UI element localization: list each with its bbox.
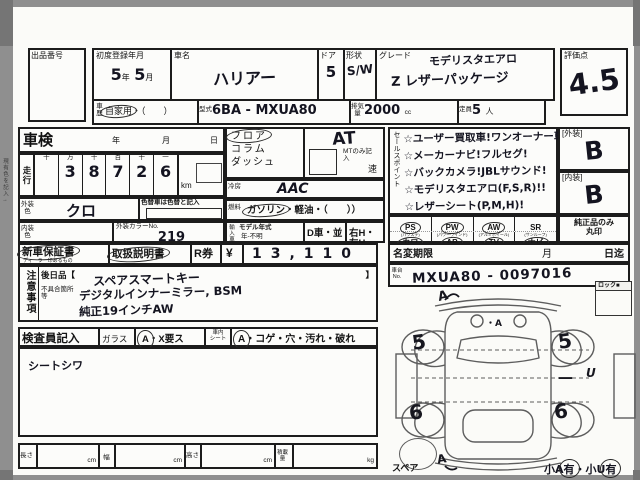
diagram-mark-wheel-rl: 6 [408,399,424,424]
cm-unit: cm [173,458,182,465]
name-change-month-unit: 月 [542,249,552,260]
digit-header: 一 [154,155,177,162]
chassis-number-row: 車台No. MXUA80 - 0097016 [388,263,630,287]
capacity-value: 5 [472,103,481,118]
seat-label-bottom: シート [206,337,230,343]
length-label: 長さ [20,452,33,459]
shaken-day-unit: 日 [210,137,218,146]
scan-corner [0,0,13,46]
mileage-digit: 2 [130,162,153,181]
mileage-row: 走行 十 万3 千8 百7 十2 一6 km [18,153,225,197]
exterior-color-value: クロ [66,200,96,221]
genuine-parts-note-box: 純正品のみ 丸印 [558,215,630,243]
scan-corner [633,0,640,46]
history-rest: ・（ ） [132,106,173,116]
interior-rating-value: B [559,176,630,212]
name-change-row: 名変期限 月 日迄 [388,243,630,263]
capacity-cell: 定員5 人 [457,101,544,123]
d-car-options: D車・並 [307,229,342,239]
seat-mark-a: A [238,332,245,348]
grade-cell: グレード モデリスタエアロ Z レザーパッケージ [375,50,553,99]
inspector-note: シートシワ [20,346,376,374]
spare-tire-label: スペア [392,464,418,474]
note-exists-2: 有 [605,461,616,477]
interior-color-row: 内装色 外装カラーNo. 219 [18,221,225,243]
warranty-sublabel: ディーラー印あるもの [20,259,108,264]
history-label: 車歴 [94,103,105,117]
glass-marks-cell: A・X要ス [134,329,204,345]
ac-value: AAC [277,181,309,197]
inspector-label: 検査員記入 [20,333,80,345]
inspector-header-row: 検査員記入 ガラス A・X要ス 車内 シート A・コゲ・穴・汚れ・破れ [18,327,378,347]
exterior-rating-value: B [559,132,630,168]
model-year-label: モデル年式 [239,225,272,232]
position-column: コラム [231,144,299,155]
mileage-digit-cell: 千8 [82,155,106,195]
note-small-a: 小A [544,463,564,476]
height-label: 高さ [186,452,199,459]
seat-mark-rest: ・コゲ・穴・汚れ・破れ [245,334,355,345]
mileage-digit: 8 [83,162,106,181]
digit-header: 十 [130,155,153,162]
first-registration-label: 初度登録年月 [94,50,170,63]
note-small-u: ・小U [575,463,606,476]
interior-rating-box: [内装] B [558,171,630,215]
import-handle-row: 輸入車 モデル年式 年-不明 D車・並 右H・左H [225,221,385,243]
capacity-unit: 人 [486,107,494,116]
mileage-digit-cell: 十2 [129,155,153,195]
displacement-label: 排気量 [351,103,364,117]
mileage-label: 走行 [20,155,33,195]
interior-color-label: 内装色 [21,225,34,239]
r-ticket-currency-cell: ¥ [220,245,242,263]
first-registration-cell: 初度登録年月 5年 5月 [94,50,170,99]
name-change-deadline-unit: 日迄 [604,249,624,260]
score-box: 評価点 4.5 [560,48,628,116]
r-ticket-value: 13,110 [244,245,376,262]
exterior-color-row: 外装色 クロ 色替車は色替と記入 [18,197,225,221]
width-label-cell: 幅 [98,445,114,467]
grade-label: グレード [377,50,413,63]
measurements-row: 長さ cm 幅 cm 高さ cm 積載量 kg [18,443,378,469]
mileage-digit-cell: 万3 [58,155,82,195]
later-item-label: 後日品【 [39,271,75,280]
sales-line: ☆レザーシート(P,M,H)! [404,197,555,217]
history-cell: 車歴自家用・（ ） [94,101,197,123]
fuel-label: 燃料 [228,204,241,211]
fuel-options-rest: ・軽油・（ ） [285,205,352,216]
chassis-value: MXUA80 - 0097016 [412,265,573,287]
lock-entry-box [595,290,632,316]
meter-note-box [196,163,222,183]
equipment-cell-aw: AW(アルミホイール) [473,217,515,231]
inspector-notes-box: シートシワ [18,347,378,437]
color-change-box [146,208,222,219]
defects-label: 不具合箇所等 [39,285,79,317]
ac-row: 冷房 AAC [225,179,385,199]
car-name-cell: 車名 ハリアー [170,50,317,99]
year-unit: 年 [122,73,130,82]
sales-line: ☆ユーザー買取車!ワンオーナー車! [403,129,554,149]
model-year-value: 年-不明 [241,234,263,241]
kg-unit: kg [367,458,374,465]
seat-marks-cell: A・コゲ・穴・汚れ・破れ [230,329,376,345]
diagram-mark-side-letter: U [586,366,596,380]
later-item-close: 】 [365,271,376,280]
mt-note: MTのみ記入 [343,149,377,163]
fuel-row: 燃料 ガソリン・軽油・（ ）） [225,199,385,221]
shaken-label: 車検 [20,132,53,149]
chassis-label: 車台No. [391,268,403,280]
glass-label-cell: ガラス [98,329,134,345]
equipment-cell-sr: SR(サンルーフ) [514,217,556,231]
mileage-digit-cell: 百7 [105,155,129,195]
shape-value: S/W [344,61,375,78]
shaken-row: 車検 年 月 日 [18,127,225,153]
door-value: 5 [319,63,343,81]
displacement-value: 2000 [364,103,400,118]
glass-mark-rest: ・X要ス [149,334,184,345]
yen-sign: ¥ [222,245,242,260]
height-label-cell: 高さ [184,445,200,467]
diagram-mark-hood: ・A [486,316,502,329]
capacity-label: 定員 [459,106,472,113]
fuel-selected: ガソリン [247,206,285,216]
header-row-1: 初度登録年月 5年 5月 車名 ハリアー ドア 5 形状 S/W グレード モデ… [92,48,555,101]
auction-number-box: 出品番号 [28,48,86,122]
model-code-cell: 型式6BA - MXUA80 [197,101,349,123]
cm-unit: cm [87,458,96,465]
lock-box: ロック■ [595,281,632,316]
door-label: ドア [319,50,343,63]
color-change-cell: 色替車は色替と記入 [138,199,229,219]
cm-unit: cm [263,458,272,465]
displacement-cell: 排気量2000 cc [349,101,457,123]
lock-label: ロック■ [595,281,632,290]
seat-label-cell: 車内 シート [204,329,230,345]
r-ticket-label: R券 [192,245,220,260]
inspector-label-cell: 検査員記入 [20,329,98,345]
digit-header: 十 [35,155,58,162]
equipment-cell-ps: PS(パワステ) [390,217,431,231]
digit-header: 百 [106,155,129,162]
shaken-year-unit: 年 [112,137,120,146]
sales-points-box: セールスポイント ☆ユーザー買取車!ワンオーナー車! ☆メーカーナビ!フルセグ!… [388,127,558,215]
position-dash: ダッシュ [231,157,299,168]
diagram-mark-wheel-rr: 6 [553,398,569,423]
model-code-value: 6BA - MXUA80 [212,103,317,118]
scan-corner [0,470,13,480]
warranty-row: 新車保証書 ディーラー印あるもの 取扱説明書 R券 ¥ 13,110 [18,243,378,265]
glass-label: ガラス [100,334,127,344]
d-car-cell: D車・並 [303,223,345,241]
first-registration-month: 5 [134,65,145,84]
sales-points-label: セールスポイント [391,131,401,215]
equipment-label: SR [530,223,541,232]
digit-header: 万 [59,155,82,162]
notes-label: 注意事項 [22,270,37,322]
width-label: 幅 [100,454,113,461]
name-change-label: 名変期限 [393,249,433,260]
color-change-note: 色替車は色替と記入 [140,199,229,208]
position-floor: フロア [231,131,267,142]
mileage-digit: 6 [154,162,177,181]
shape-cell: 形状 S/W [343,50,375,99]
first-registration-year: 5 [111,65,122,84]
mileage-unit: km [181,182,192,191]
mileage-digit-cell: 一6 [153,155,177,195]
diagram-bottom-note: 小A有・小U有 [544,461,616,477]
grade-line2: Z レザーパッケージ [391,65,554,90]
exterior-rating-box: [外装] B [558,127,630,171]
length-value-cell: cm [36,445,98,467]
length-label-cell: 長さ [20,445,36,467]
load-value-cell: kg [292,445,376,467]
score-value: 4.5 [560,61,628,104]
month-unit: 月 [145,73,153,82]
mileage-unit-cell: km [177,155,223,195]
color-no-cell: 外装カラーNo. 219 [112,223,229,241]
displacement-unit: cc [405,109,412,116]
margin-note: 現有色を記入→ [1,158,9,228]
equipment-grid: PS(パワステ) PW(パワーウインド) AW(アルミホイール) SR(サンルー… [388,215,558,243]
width-value-cell: cm [114,445,184,467]
mt-entry-box [309,149,337,175]
car-name-label: 車名 [172,50,317,63]
import-label: 輸入車 [227,225,237,243]
header-row-2: 車歴自家用・（ ） 型式6BA - MXUA80 排気量2000 cc 定員5 … [92,99,546,125]
digit-header: 千 [83,155,106,162]
load-label: 積載量 [276,450,289,462]
r-ticket-value-cell: 13,110 [242,245,376,263]
model-code-label: 型式 [199,106,212,113]
ac-label: 冷房 [228,183,241,190]
mileage-digit: 7 [106,162,129,181]
diagram-mark-side-line: — [558,368,573,386]
transmission-cell: AT MTのみ記入 速 [303,129,383,177]
warranty-cell: 新車保証書 ディーラー印あるもの [20,245,108,263]
height-value-cell: cm [200,445,274,467]
handle-cell: 右H・左H [345,223,383,241]
r-ticket-label-cell: R券 [190,245,220,263]
exterior-color-label: 外装色 [21,201,34,215]
manual-label: 取扱説明書 [112,249,165,261]
import-cell: 輸入車 モデル年式 年-不明 [227,223,303,241]
shaken-month-unit: 月 [162,137,170,146]
load-label-cell: 積載量 [274,445,292,467]
history-selected: 自家用 [105,107,132,117]
glass-mark-a: A [142,332,149,348]
door-cell: ドア 5 [317,50,343,99]
position-transmission-box: フロア コラム ダッシュ AT MTのみ記入 速 [225,127,385,179]
manual-cell: 取扱説明書 [108,245,190,263]
mileage-digit-cell: 十 [35,155,58,195]
speed-unit: 速 [368,165,377,175]
auction-number-label: 出品番号 [30,50,84,63]
warranty-label: 新車保証書 [22,247,75,259]
equipment-cell-pw: PW(パワーウインド) [431,217,473,231]
car-name-value: ハリアー [172,62,318,91]
mileage-digit: 3 [59,162,82,181]
mileage-digit-grid: 十 万3 千8 百7 十2 一6 [33,155,177,195]
note-exists-1: 有 [564,461,575,477]
notes-box: 注意事項 後日品【 スペアスマートキー 】 不具合箇所等 デジタルインナーミラー… [18,265,378,322]
sales-line: ☆モデリスタエアロ(F,S,R)!! [404,180,555,200]
genuine-parts-line2: 丸印 [560,228,628,237]
